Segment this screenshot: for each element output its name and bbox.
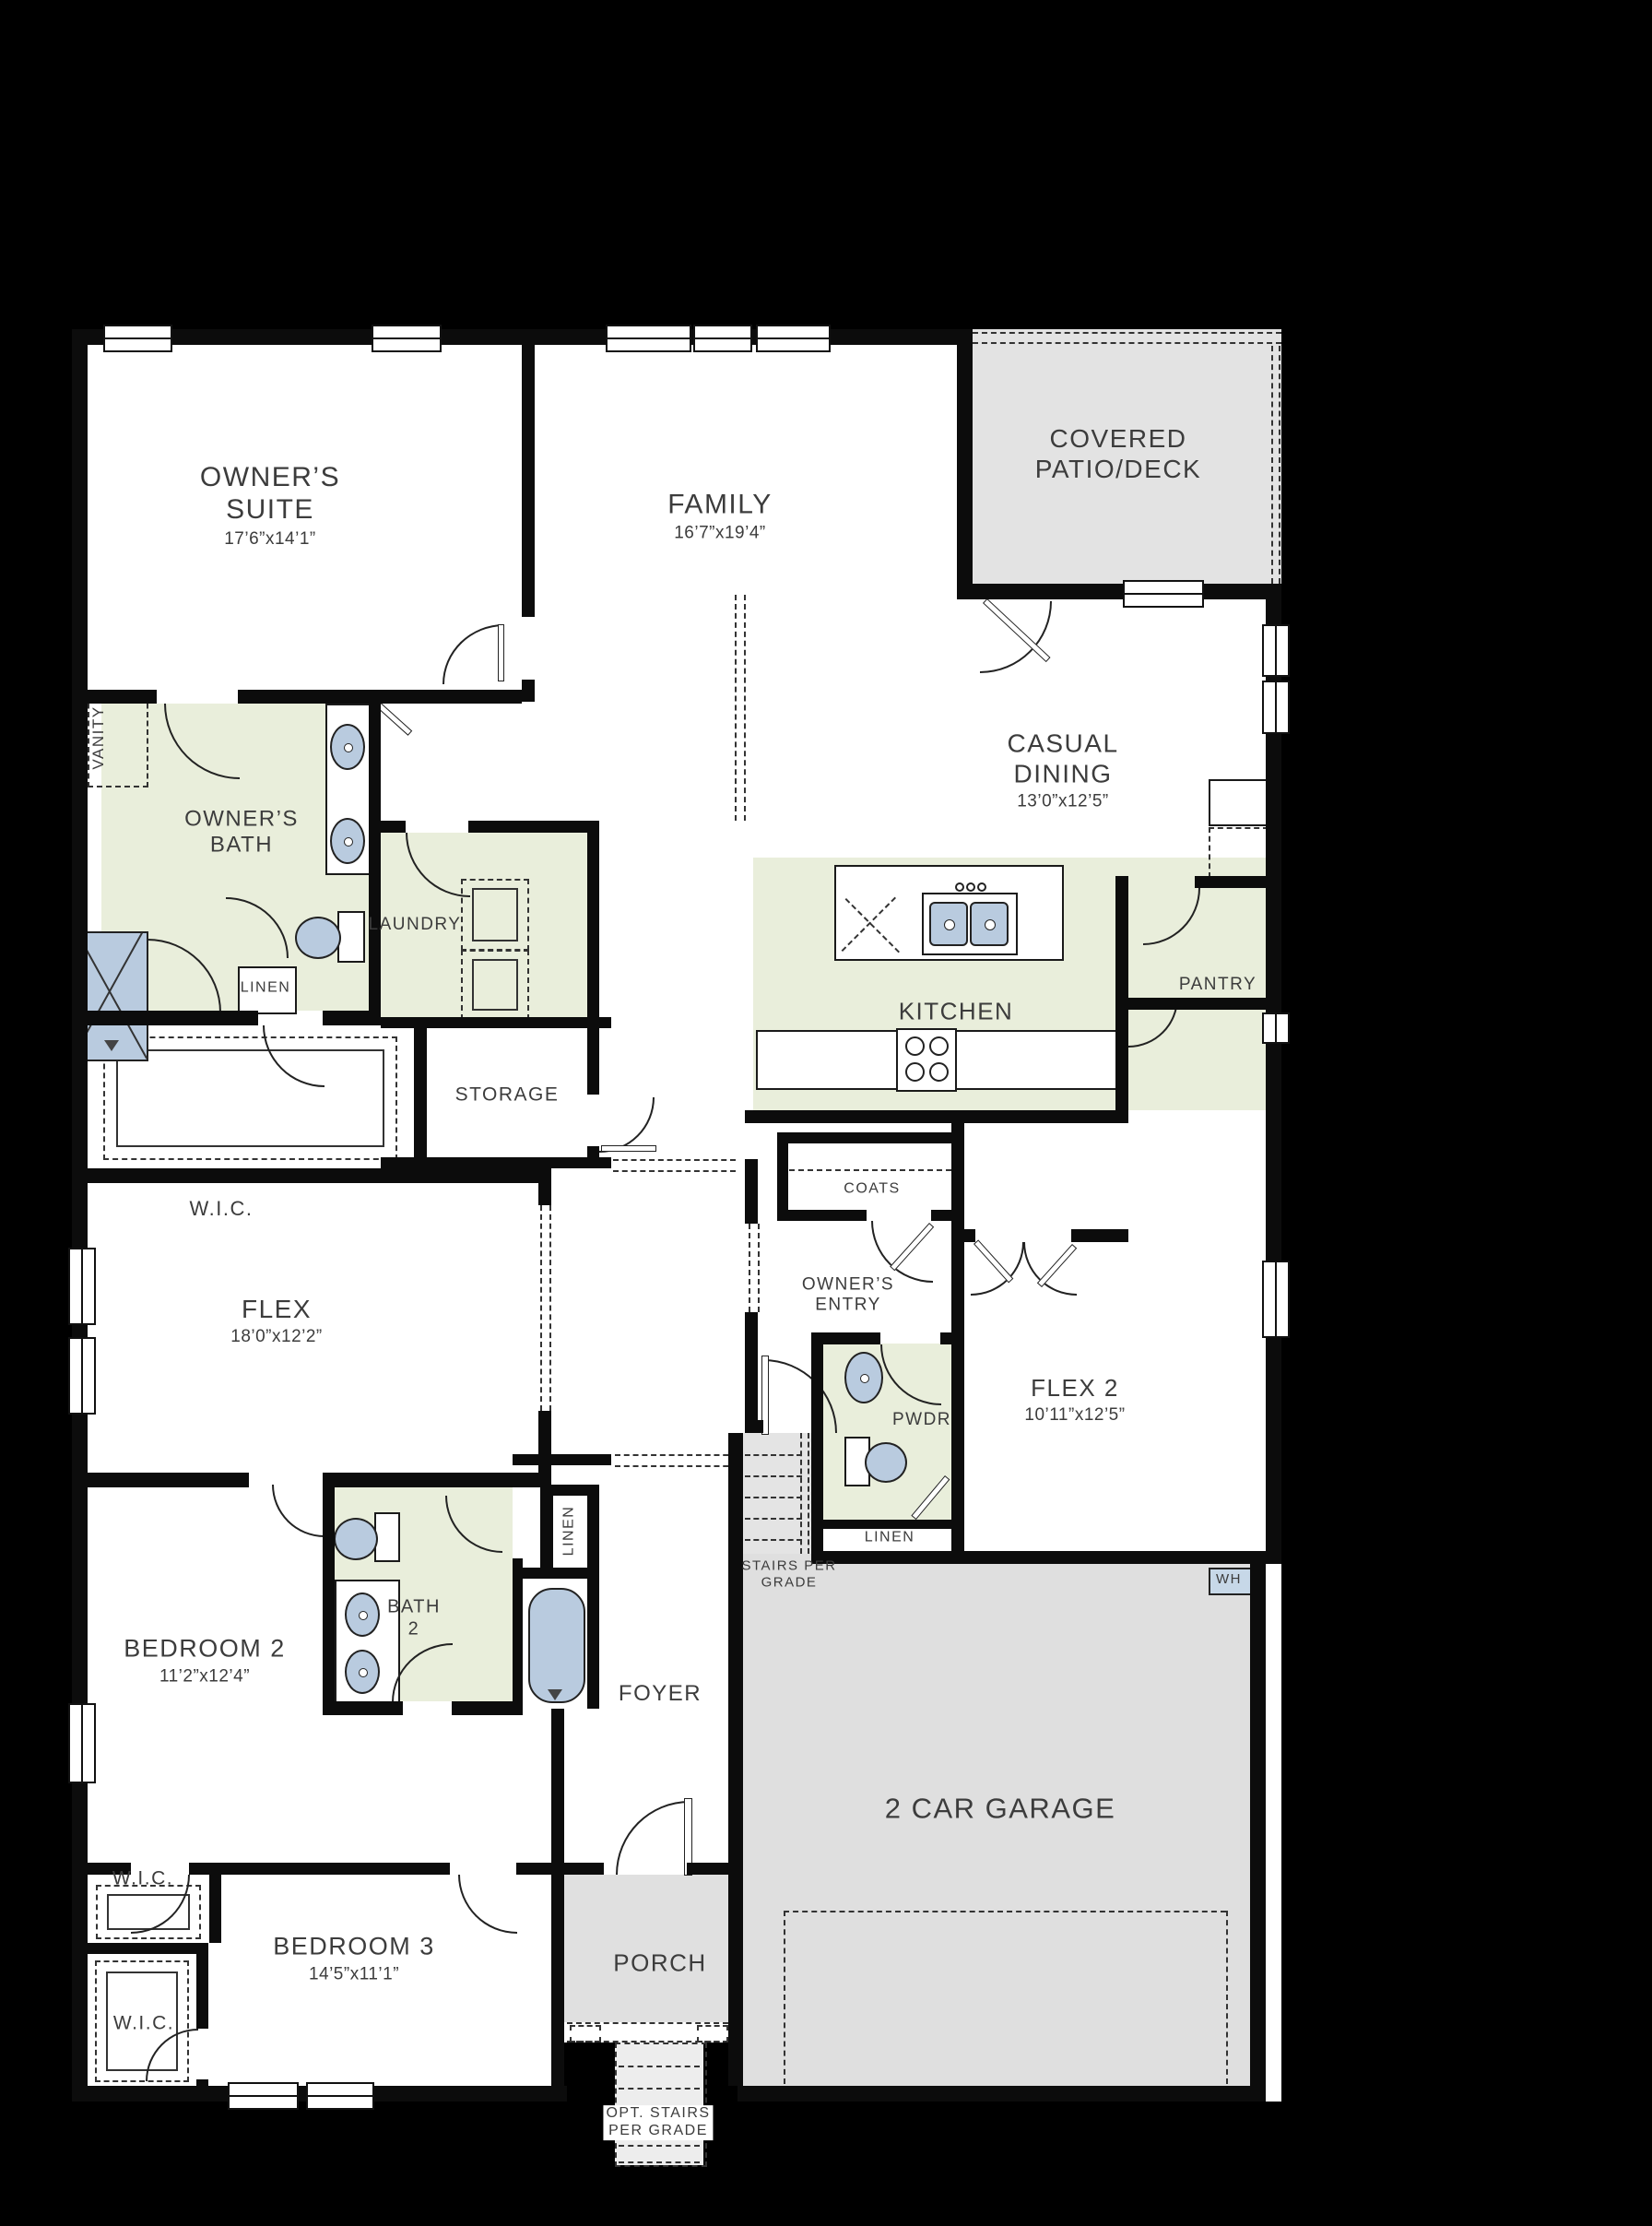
window-icon [756, 325, 831, 352]
wall-segment [522, 329, 535, 617]
room-label-linen-bath: LINEN [241, 980, 291, 998]
room-label-pantry: PANTRY [1179, 975, 1257, 995]
shelf-outline [472, 888, 518, 941]
burner-icon [929, 1062, 949, 1082]
room-name-kitchen: KITCHEN [899, 998, 1014, 1026]
dashed-line [613, 1159, 736, 1161]
burner-icon [966, 882, 975, 892]
wall-segment [72, 1168, 538, 1183]
room-dims-casual-dining: 13’0”x12’5” [1007, 791, 1118, 811]
wall-segment [1071, 1229, 1128, 1242]
room-name-linen-bath: LINEN [241, 980, 291, 998]
room-label-bedroom2: BEDROOM 211’2”x12’4” [124, 1634, 286, 1687]
wall-segment [745, 1312, 758, 1433]
room-label-wic-owners: W.I.C. [190, 1197, 254, 1221]
door-leaf [601, 1145, 656, 1152]
room-dims-bedroom2: 11’2”x12’4” [124, 1666, 286, 1687]
room-name-stairs: STAIRS PER GRADE [741, 1557, 836, 1590]
room-label-bath2: BATH 2 [387, 1596, 441, 1640]
wall-segment [238, 690, 522, 704]
dashed-line [567, 2022, 728, 2024]
shelf-outline [116, 1049, 384, 1147]
wall-segment [88, 1011, 258, 1025]
dashed-line [745, 1497, 802, 1498]
wall-segment [745, 1110, 1115, 1123]
dashed-line [745, 1454, 802, 1456]
room-label-kitchen: KITCHEN [899, 998, 1014, 1026]
dashed-line [784, 1911, 1226, 1912]
room-name-wic-bed2: W.I.C. [112, 1868, 173, 1891]
room-label-pwdr: PWDR [892, 1410, 951, 1430]
room-name-bath2: BATH 2 [387, 1596, 441, 1640]
room-name-owners-bath: OWNER’S BATH [184, 807, 299, 859]
sink-icon [844, 1352, 883, 1403]
wall-segment [369, 704, 381, 1017]
wall-segment [72, 1943, 208, 1954]
sink-icon [345, 1593, 380, 1637]
wall-segment [1115, 998, 1266, 1010]
room-name-owners-entry: OWNER’S ENTRY [802, 1275, 894, 1317]
dashed-line [745, 1475, 802, 1477]
room-label-casual-dining: CASUAL DINING13’0”x12’5” [1007, 728, 1118, 811]
wall-segment [811, 1551, 1266, 1564]
room-name-coats: COATS [844, 1181, 900, 1199]
wall-segment [811, 1520, 956, 1529]
dashed-line [1271, 346, 1273, 584]
wall-segment [551, 1709, 564, 2102]
dashed-line [973, 342, 1281, 344]
cabinet-fixture-box [337, 911, 365, 963]
wall-segment [189, 1863, 450, 1875]
wall-segment [564, 1863, 604, 1875]
room-name-laundry: LAUNDRY [369, 915, 462, 935]
dashed-line [973, 332, 1281, 334]
wall-segment [522, 680, 535, 702]
room-label-owners-suite: OWNER’S SUITE17’6”x14’1” [200, 461, 340, 550]
window-icon [1262, 1261, 1290, 1338]
wall-segment [513, 1454, 611, 1465]
window-icon [68, 1703, 96, 1783]
wall-segment [745, 1159, 758, 1224]
drain-icon [548, 1689, 562, 1700]
room-label-family: FAMILY16’7”x19’4” [667, 489, 772, 545]
burner-icon [905, 1062, 925, 1082]
wall-segment [196, 1943, 208, 2029]
window-icon [306, 2082, 374, 2110]
wall-segment [737, 2086, 1266, 2102]
dashed-line [540, 1205, 542, 1411]
wall-segment [72, 1473, 249, 1487]
toilet-icon [865, 1442, 907, 1483]
dashed-line [735, 595, 737, 821]
room-label-stairs: STAIRS PER GRADE [741, 1557, 836, 1590]
room-label-linen-foyer: LINEN [561, 1506, 579, 1557]
dashed-line [619, 2161, 700, 2163]
dashed-line [549, 1205, 551, 1411]
dashed-line [808, 1433, 809, 1554]
sink-icon [330, 724, 365, 770]
room-label-foyer: FOYER [619, 1681, 702, 1707]
room-name-pantry: PANTRY [1179, 975, 1257, 995]
room-dims-bedroom3: 14’5”x11’1” [273, 1964, 435, 1984]
wall-segment [957, 584, 1281, 599]
dashed-line [784, 1911, 785, 2084]
burner-icon [977, 882, 986, 892]
window-icon [606, 325, 691, 352]
wall-segment [777, 1210, 867, 1221]
basin-icon [929, 902, 968, 946]
wall-segment [72, 329, 88, 2102]
basin-icon [970, 902, 1009, 946]
fixture-icon [528, 1588, 585, 1703]
room-name-bedroom3: BEDROOM 3 [273, 1932, 435, 1961]
window-icon [68, 1337, 96, 1415]
dashed-line [1279, 346, 1280, 584]
wall-segment [540, 1485, 553, 1577]
dashed-line [615, 1454, 737, 1456]
room-name-wh: WH [1216, 1571, 1242, 1588]
toilet-icon [295, 917, 341, 959]
sink-icon [345, 1650, 380, 1694]
room-name-linen-hall: LINEN [865, 1530, 915, 1547]
wall-segment [414, 1025, 427, 1157]
room-label-opt-stairs: OPT. STAIRS PER GRADE [603, 2105, 713, 2140]
burner-icon [955, 882, 964, 892]
window-icon [68, 1248, 96, 1325]
window-icon [103, 325, 172, 352]
wall-segment [587, 1485, 599, 1709]
wall-segment [468, 821, 599, 833]
room-name-casual-dining: CASUAL DINING [1007, 728, 1118, 788]
room-name-porch: PORCH [613, 1949, 706, 1978]
room-label-bedroom3: BEDROOM 314’5”x11’1” [273, 1932, 435, 1984]
room-label-owners-bath: OWNER’S BATH [184, 807, 299, 859]
wall-segment [1250, 1551, 1266, 2102]
shelf-outline [472, 959, 518, 1011]
cabinet-fixture-box [896, 1028, 957, 1092]
room-label-storage: STORAGE [455, 1084, 560, 1107]
dashed-outline [1209, 827, 1268, 878]
wall-segment [381, 821, 406, 833]
wall-segment [964, 1229, 975, 1242]
window-icon [1262, 1012, 1290, 1044]
wall-segment [513, 1558, 523, 1703]
wall-segment [381, 1157, 611, 1168]
wall-segment [323, 1011, 381, 1025]
wall-segment [777, 1132, 956, 1143]
wall-segment [777, 1132, 788, 1221]
wall-segment [940, 1332, 956, 1344]
wall-segment [323, 1473, 551, 1487]
dashed-line [800, 1433, 802, 1554]
drain-icon [104, 1040, 119, 1051]
dashed-line [789, 1169, 951, 1171]
room-name-linen-foyer: LINEN [561, 1506, 579, 1557]
wall-segment [687, 1863, 728, 1875]
room-name-opt-stairs: OPT. STAIRS PER GRADE [603, 2105, 713, 2140]
wall-segment [538, 1157, 551, 1205]
burner-icon [929, 1036, 949, 1056]
wall-segment [323, 1487, 335, 1703]
room-name-foyer: FOYER [619, 1681, 702, 1707]
window-icon [228, 2082, 299, 2110]
room-name-bedroom2: BEDROOM 2 [124, 1634, 286, 1664]
wall-segment [323, 1701, 403, 1715]
room-name-vanity: VANITY [89, 705, 108, 769]
room-name-owners-suite: OWNER’S SUITE [200, 461, 340, 527]
window-icon [1123, 580, 1204, 608]
burner-icon [905, 1036, 925, 1056]
dashed-line [758, 1224, 760, 1312]
room-label-garage: 2 CAR GARAGE [885, 1793, 1116, 1827]
dashed-line [619, 2066, 700, 2067]
wall-segment [587, 821, 599, 1095]
wall-segment [381, 1017, 611, 1028]
sink-icon [330, 818, 365, 864]
room-label-owners-entry: OWNER’S ENTRY [802, 1275, 894, 1317]
room-label-coats: COATS [844, 1181, 900, 1199]
toilet-icon [334, 1518, 378, 1560]
room-label-vanity: VANITY [89, 705, 108, 769]
wall-segment [951, 1110, 964, 1551]
cabinet-fixture-box [374, 1512, 400, 1562]
dashed-line [619, 2145, 700, 2147]
room-name-wic-owners: W.I.C. [190, 1197, 254, 1221]
wall-segment [196, 2079, 208, 2092]
dashed-line [613, 1170, 736, 1172]
floor-plan-canvas: OWNER’S SUITE17’6”x14’1”FAMILY16’7”x19’4… [0, 0, 1652, 2226]
room-name-storage: STORAGE [455, 1084, 560, 1107]
wall-segment [88, 690, 157, 704]
room-name-covered-patio: COVERED PATIO/DECK [1035, 423, 1201, 484]
door-leaf [498, 624, 504, 681]
dashed-line [615, 1465, 737, 1467]
wall-segment [728, 1433, 743, 2086]
dashed-line [619, 2088, 700, 2090]
window-icon [372, 325, 442, 352]
dashed-line [744, 595, 746, 821]
wall-segment [745, 1420, 763, 1433]
room-dims-flex: 18’0”x12’2” [230, 1327, 323, 1347]
room-label-wic-bed2: W.I.C. [112, 1868, 173, 1891]
room-label-covered-patio: COVERED PATIO/DECK [1035, 423, 1201, 484]
wall-segment [1195, 876, 1266, 888]
room-name-flex2: FLEX 2 [1024, 1374, 1125, 1403]
wall-segment [516, 1863, 564, 1875]
window-icon [1262, 681, 1290, 734]
room-label-porch: PORCH [613, 1949, 706, 1978]
room-dims-owners-suite: 17’6”x14’1” [200, 529, 340, 550]
room-name-flex: FLEX [230, 1294, 323, 1324]
room-dims-flex2: 10’11”x12’5” [1024, 1405, 1125, 1426]
dashed-line [745, 1518, 802, 1520]
room-label-linen-hall: LINEN [865, 1530, 915, 1547]
room-dims-family: 16’7”x19’4” [667, 524, 772, 544]
dashed-line [745, 1539, 802, 1541]
room-name-garage: 2 CAR GARAGE [885, 1793, 1116, 1827]
room-label-wic-bed3: W.I.C. [113, 2013, 174, 2036]
room-name-wic-bed3: W.I.C. [113, 2013, 174, 2036]
dashed-line [567, 2041, 728, 2042]
room-label-flex2: FLEX 210’11”x12’5” [1024, 1374, 1125, 1426]
wall-segment [957, 329, 973, 599]
wall-segment [452, 1701, 523, 1715]
room-label-wh: WH [1216, 1571, 1242, 1588]
room-label-laundry: LAUNDRY [369, 915, 462, 935]
wall-segment [209, 1875, 221, 1943]
room-name-family: FAMILY [667, 489, 772, 521]
window-icon [1262, 624, 1290, 677]
wall-segment [811, 1332, 880, 1344]
room-name-pwdr: PWDR [892, 1410, 951, 1430]
cabinet-fixture-box [1209, 779, 1268, 826]
window-icon [693, 325, 752, 352]
room-label-flex: FLEX18’0”x12’2” [230, 1294, 323, 1347]
dashed-line [749, 1224, 750, 1312]
dashed-line [1226, 1911, 1228, 2084]
